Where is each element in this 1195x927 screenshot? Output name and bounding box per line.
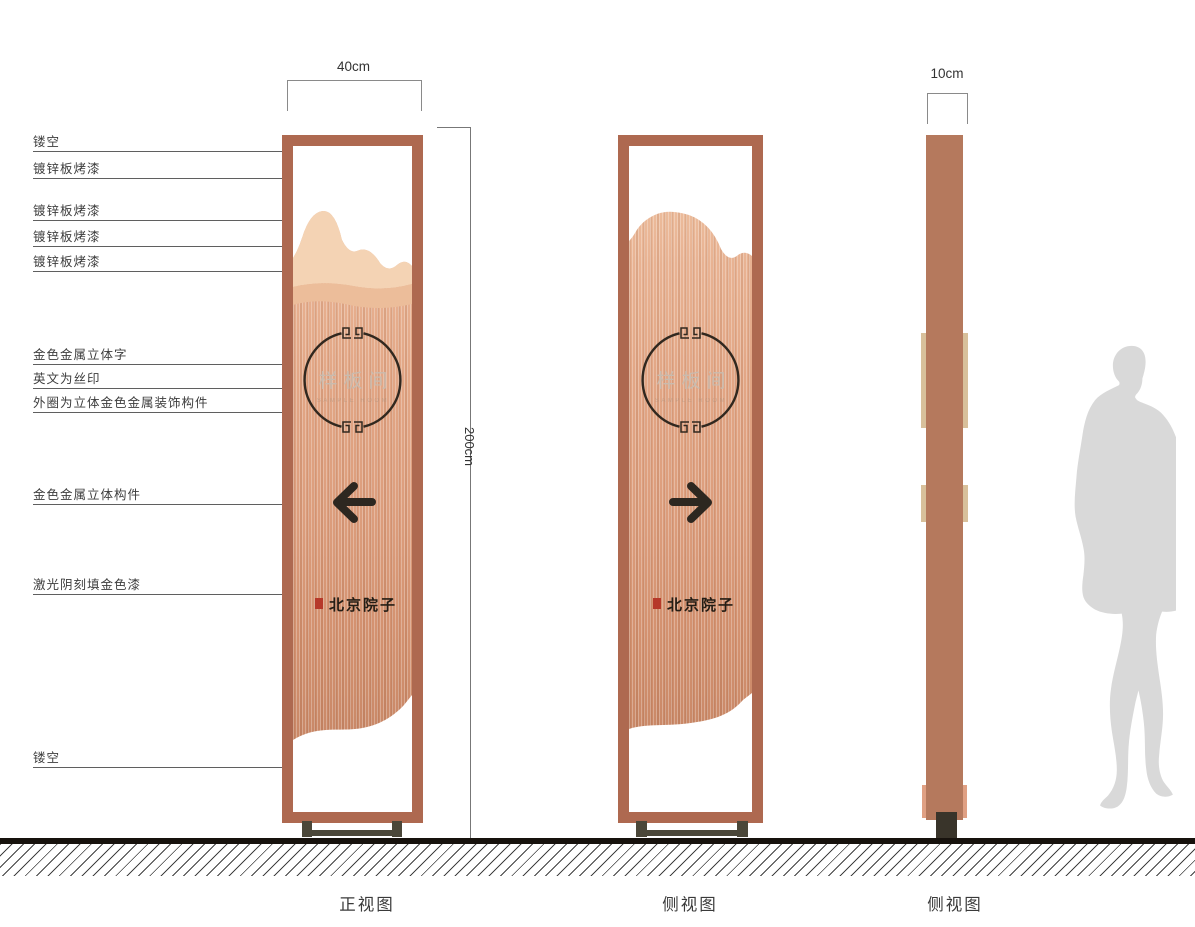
hollow-bottom-cutout — [629, 693, 752, 812]
callout-label: 镀锌板烤漆 — [33, 230, 101, 245]
callout-label: 外圈为立体金色金属装饰构件 — [33, 396, 209, 411]
pillar-wood-panel: 样板间 SAMPLE ROOM 北京院子 — [293, 146, 412, 812]
callout-galvanized-2: 镀锌板烤漆 — [33, 204, 101, 222]
dim-front-width-label: 40cm — [287, 59, 420, 74]
callout-label: 镀锌板烤漆 — [33, 204, 101, 219]
brand-calligraphy-text: 北京院子 — [329, 596, 397, 614]
leader-line — [33, 246, 291, 247]
fret-ornament-bottom-icon — [681, 422, 700, 432]
room-name-english-text: SAMPLE ROOM — [317, 398, 389, 404]
direction-arrow-right-icon — [673, 486, 708, 519]
profile-foot — [936, 812, 957, 838]
callout-english-silkscreen: 英文为丝印 — [33, 372, 101, 390]
callout-label: 激光阴刻填金色漆 — [33, 578, 141, 593]
profile-column — [926, 135, 963, 820]
caption-side-view-2: 侧视图 — [890, 891, 1020, 915]
callout-label: 镀锌板烤漆 — [33, 255, 101, 270]
leader-line — [33, 178, 285, 179]
human-scale-silhouette — [1036, 342, 1176, 834]
dim-side-width-label: 10cm — [917, 66, 977, 81]
leader-line — [33, 220, 322, 221]
callout-laser-engraved: 激光阴刻填金色漆 — [33, 578, 141, 596]
fret-ornament-bottom-icon — [343, 422, 362, 432]
callout-label: 英文为丝印 — [33, 372, 101, 387]
room-name-english-text: SAMPLE ROOM — [655, 398, 727, 404]
leader-line — [33, 364, 318, 365]
side-pillar-base-bar — [636, 830, 748, 836]
side-view-pillar: 样板间 SAMPLE ROOM 北京院子 — [618, 135, 763, 823]
callout-gold-letters: 金色金属立体字 — [33, 348, 128, 366]
room-name-text: 样板间 — [656, 370, 731, 392]
room-name-text: 样板间 — [318, 370, 393, 392]
callout-label: 镀锌板烤漆 — [33, 162, 101, 177]
front-pillar-art: 样板间 SAMPLE ROOM 北京院子 — [293, 146, 412, 812]
brand-calligraphy-text: 北京院子 — [667, 596, 735, 614]
direction-arrow-left-icon — [337, 486, 372, 519]
leader-line — [33, 151, 307, 152]
side-pillar-art: 样板间 SAMPLE ROOM 北京院子 — [629, 146, 752, 812]
dim-side-width-bracket — [927, 93, 968, 124]
fret-ornament-top-icon — [681, 328, 700, 338]
callout-gold-component: 金色金属立体构件 — [33, 488, 141, 506]
fret-ornament-top-icon — [343, 328, 362, 338]
caption-front-view: 正视图 — [302, 891, 432, 915]
callout-galvanized-1: 镀锌板烤漆 — [33, 162, 101, 180]
dim-height-line — [470, 127, 471, 839]
drawing-canvas: 镂空 镀锌板烤漆 镀锌板烤漆 镀锌板烤漆 镀锌板烤漆 金色金属立体字 英文为丝印… — [0, 0, 1195, 927]
caption-side-view-1: 侧视图 — [625, 891, 755, 915]
pillar-wood-panel: 样板间 SAMPLE ROOM 北京院子 — [629, 146, 752, 812]
dim-height-label: 200cm — [462, 427, 477, 466]
hollow-bottom-cutout — [293, 695, 412, 812]
leader-line — [33, 271, 291, 272]
callout-outer-ring: 外圈为立体金色金属装饰构件 — [33, 396, 209, 414]
callout-label: 镂空 — [33, 751, 60, 766]
callout-label: 镂空 — [33, 135, 60, 150]
callout-hollow-bottom: 镂空 — [33, 751, 60, 769]
callout-label: 金色金属立体构件 — [33, 488, 141, 503]
leader-line — [33, 412, 315, 413]
hollow-top-cutout — [629, 146, 752, 258]
front-pillar-base-bar — [302, 830, 402, 836]
callout-hollow-top: 镂空 — [33, 135, 60, 153]
callout-galvanized-4: 镀锌板烤漆 — [33, 255, 101, 273]
dim-height-tick — [437, 127, 471, 128]
red-seal-icon — [653, 598, 661, 609]
callout-galvanized-3: 镀锌板烤漆 — [33, 230, 101, 248]
callout-label: 金色金属立体字 — [33, 348, 128, 363]
leader-line — [33, 767, 302, 768]
front-view-pillar: 样板间 SAMPLE ROOM 北京院子 — [282, 135, 423, 823]
ground-hatch — [0, 844, 1195, 876]
dim-front-width-bracket — [287, 80, 422, 111]
red-seal-icon — [315, 598, 323, 609]
